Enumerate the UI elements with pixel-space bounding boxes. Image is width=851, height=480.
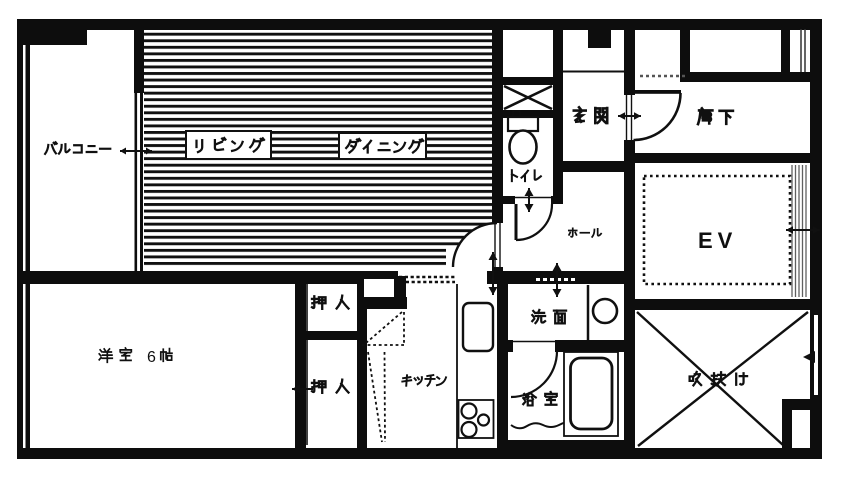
svg-text:6: 6 bbox=[147, 349, 156, 366]
svg-text:EV: EV bbox=[698, 228, 737, 253]
